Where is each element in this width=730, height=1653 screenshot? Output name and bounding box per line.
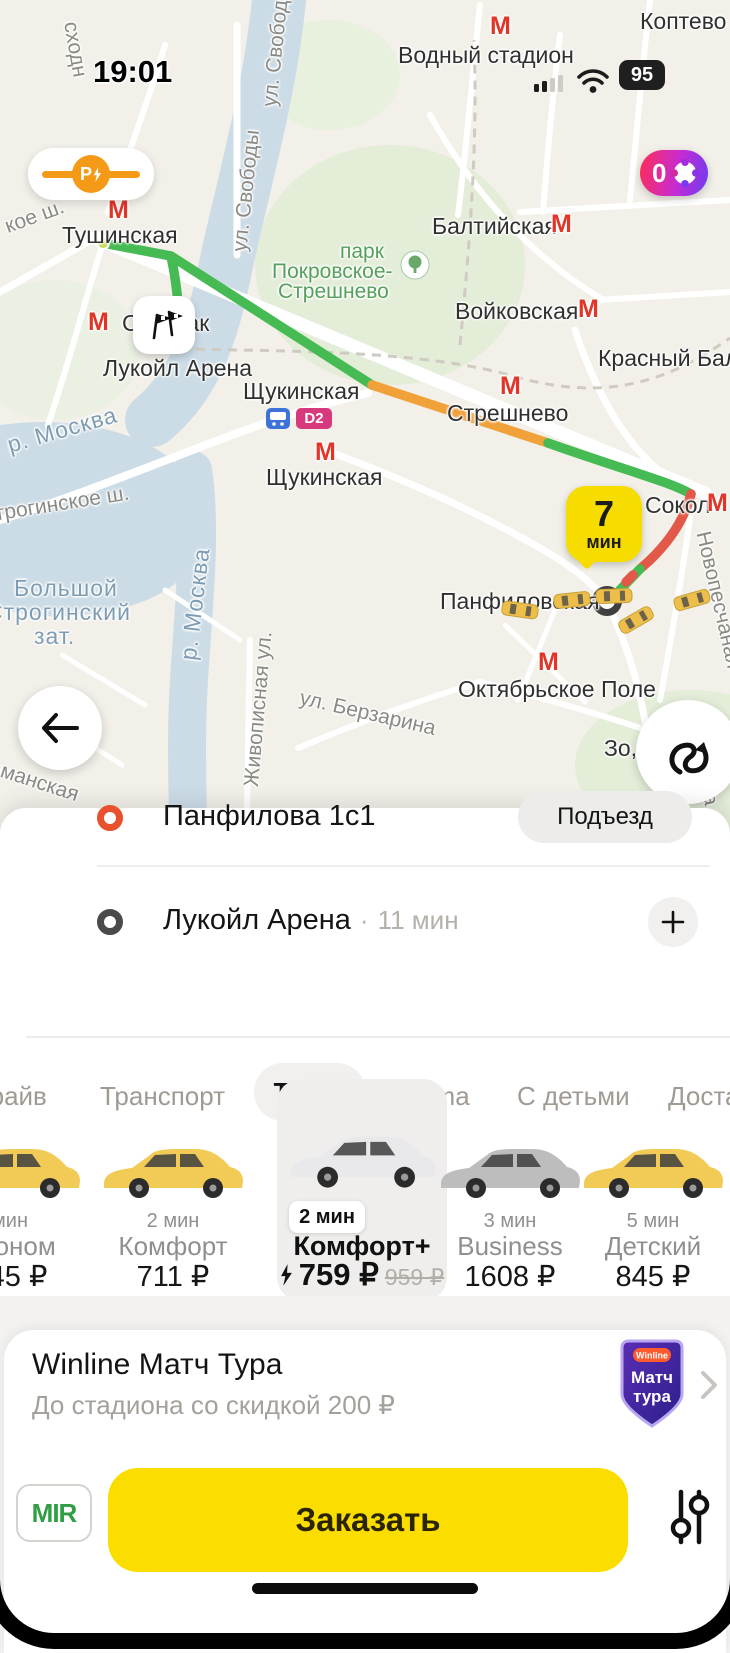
- station-label-shchukinskaya: Щукинская: [266, 464, 383, 491]
- route-red-dash: [626, 575, 633, 582]
- lightning-icon: [93, 167, 102, 182]
- place-label-koptevo: Коптево: [640, 8, 726, 35]
- metro-icon: М: [108, 196, 129, 225]
- banner-subtitle: До стадиона со скидкой 200 ₽: [32, 1390, 395, 1421]
- station-label-sokol: Сокол: [645, 492, 710, 519]
- station-label-streshnevo: Стрешнево: [447, 400, 568, 427]
- winline-logo-line2: тура: [633, 1387, 671, 1406]
- winline-logo-top: Winline: [636, 1351, 668, 1361]
- tariff-price-row: 759 ₽ 959 ₽: [277, 1257, 447, 1293]
- metro-icon: М: [500, 372, 521, 401]
- tariff-card-detsky[interactable]: 5 мин Детский 845 ₽: [573, 1128, 730, 1303]
- place-label-zo: Зо,: [604, 735, 637, 762]
- metro-icon: М: [88, 308, 109, 337]
- water-label-bolshoy: Большой: [14, 575, 118, 602]
- place-label-lukoil-arena: Лукойл Арена: [103, 355, 252, 382]
- tariff-eta: 5 мин: [573, 1210, 730, 1233]
- detsky-car-image: [578, 1140, 728, 1202]
- destination-row[interactable]: Лукойл Арена · 11 мин: [163, 904, 459, 937]
- tariff-price: 711 ₽: [93, 1259, 253, 1294]
- station-label-shchukinskaya-d2: Щукинская: [243, 378, 360, 405]
- entrance-button[interactable]: Подъезд: [518, 791, 692, 843]
- tariff-price: 645 ₽: [0, 1259, 90, 1294]
- destination-eta: 11 мин: [378, 905, 459, 936]
- battery-percent: 95: [631, 64, 653, 87]
- taxi-car-icon: [594, 585, 635, 606]
- battery-indicator: 95: [619, 60, 665, 90]
- destination-separator: ·: [360, 905, 369, 936]
- park-tree-icon: [400, 250, 430, 285]
- d2-line-badge: D2: [296, 408, 332, 429]
- destination-flags-badge: [133, 296, 195, 354]
- tariff-eta-pill: 2 мин: [289, 1201, 365, 1233]
- station-label-baltiyskaya: Балтийская: [432, 213, 557, 240]
- toll-road-letter: Р: [80, 164, 92, 185]
- station-label-tushinskaya: Тушинская: [62, 222, 178, 249]
- tab-delivery[interactable]: Доставка: [668, 1081, 730, 1112]
- econom-car-image: [0, 1140, 85, 1202]
- suburban-train-icon: [266, 408, 290, 429]
- route-squiggle-icon: [662, 724, 714, 780]
- tab-transport[interactable]: Транспорт: [100, 1081, 225, 1112]
- divider: [26, 1036, 730, 1038]
- tariff-card-komfort-plus-selected[interactable]: 2 мин Комфорт+ 759 ₽ 959 ₽: [277, 1079, 447, 1301]
- tariff-eta: 2 мин: [93, 1210, 253, 1233]
- park-label-name2: Стрешнево: [278, 280, 389, 304]
- route-eta-unit: мин: [586, 532, 621, 553]
- tariff-eta: 2 мин: [299, 1206, 355, 1229]
- checkered-flags-icon: [144, 305, 184, 345]
- home-indicator[interactable]: [252, 1583, 478, 1594]
- plus-cashback-badge[interactable]: 0: [640, 150, 708, 196]
- metro-icon: М: [707, 489, 728, 518]
- tariff-name: Комфорт: [93, 1231, 253, 1262]
- cellular-signal-icon: [534, 72, 566, 92]
- toll-road-badge[interactable]: Р: [28, 148, 154, 200]
- tariff-name: Эконом: [0, 1231, 90, 1262]
- station-label-krasny-baltiets: Красный Балтиец: [598, 345, 730, 372]
- status-time: 19:01: [93, 54, 172, 90]
- komfort-plus-car-image: [285, 1127, 441, 1192]
- route-eta-bubble: 7 мин: [566, 486, 642, 562]
- banner-title: Winline Матч Тура: [32, 1348, 282, 1382]
- route-eta-value: 7: [594, 496, 614, 532]
- tariff-card-komfort[interactable]: 2 мин Комфорт 711 ₽: [93, 1128, 253, 1303]
- destination-address: Лукойл Арена: [163, 904, 351, 937]
- tariff-name: Business: [430, 1231, 590, 1262]
- metro-icon: М: [578, 295, 599, 324]
- winline-logo-line1: Матч: [631, 1368, 673, 1387]
- pickup-point-icon: [97, 805, 123, 831]
- tariff-eta: мин: [0, 1210, 90, 1233]
- arrow-left-icon: [40, 712, 80, 744]
- entrance-button-label: Подъезд: [557, 803, 653, 831]
- taxi-car-icon: [551, 588, 593, 612]
- station-label-voykovskaya: Войковская: [455, 298, 578, 325]
- winline-promo-banner[interactable]: Winline Матч Тура До стадиона со скидкой…: [4, 1330, 726, 1448]
- pickup-address[interactable]: Панфилова 1с1: [163, 800, 375, 833]
- yandex-go-app: { "status_bar": { "time": "19:01", "batt…: [0, 0, 730, 1653]
- map[interactable]: М Водный стадион М Тушинская М Спартак Б…: [0, 0, 730, 850]
- water-label-zat: зат.: [34, 623, 75, 650]
- divider: [97, 865, 710, 867]
- back-button[interactable]: [18, 686, 102, 770]
- tariff-price: 845 ₽: [573, 1259, 730, 1294]
- plus-logo-icon: [671, 159, 699, 187]
- route-alternatives-button[interactable]: [636, 700, 730, 804]
- water-label-stroginsky: Строгинский: [0, 599, 131, 626]
- komfort-car-image: [98, 1140, 248, 1202]
- metro-icon: М: [490, 12, 511, 41]
- tariff-card-business[interactable]: 3 мин Business 1608 ₽: [430, 1128, 590, 1303]
- tab-kids[interactable]: С детьми: [517, 1081, 630, 1112]
- station-label-vodny-stadion: Водный стадион: [398, 42, 574, 69]
- metro-icon: М: [538, 648, 559, 677]
- tariff-price: 1608 ₽: [430, 1259, 590, 1294]
- plus-points-count: 0: [652, 158, 666, 189]
- station-label-oktyabrskoye-pole: Октябрьское Поле: [458, 676, 656, 703]
- discount-lightning-icon: [280, 1264, 293, 1286]
- tariff-price: 759 ₽: [299, 1257, 379, 1293]
- metro-icon: М: [315, 438, 336, 467]
- tariff-name: Детский: [573, 1231, 730, 1262]
- toll-road-circle: Р: [72, 155, 110, 193]
- destination-point-icon: [97, 909, 123, 935]
- tab-drive[interactable]: Драйв: [0, 1081, 47, 1112]
- business-car-image: [435, 1140, 585, 1202]
- tariff-eta: 3 мин: [430, 1210, 590, 1233]
- wifi-icon: [575, 66, 611, 99]
- metro-icon: М: [551, 210, 572, 239]
- tariff-card-econom[interactable]: мин Эконом 645 ₽: [0, 1128, 90, 1303]
- chevron-right-icon: [700, 1370, 718, 1400]
- plus-icon: [661, 910, 685, 934]
- add-stop-button[interactable]: [648, 897, 698, 947]
- winline-logo-shield: Winline Матч тура: [612, 1336, 692, 1432]
